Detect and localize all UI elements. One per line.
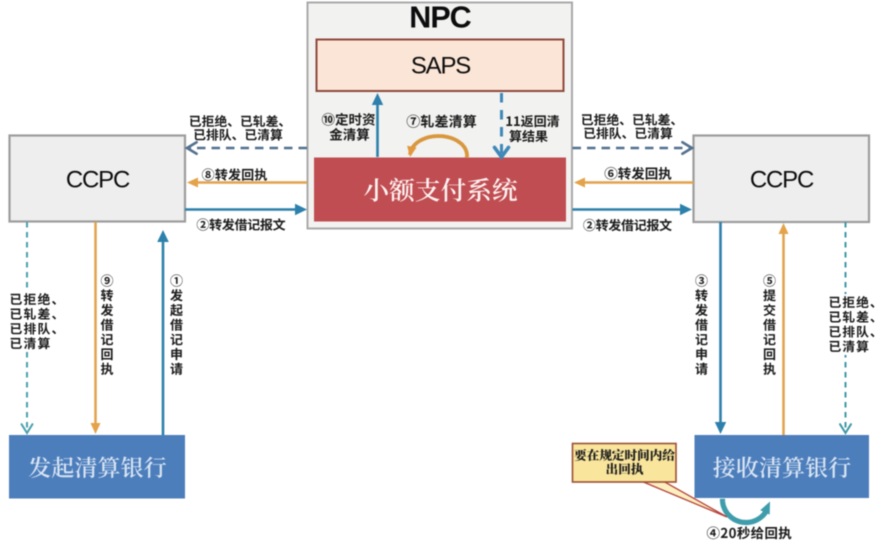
svg-text:CCPC: CCPC — [750, 167, 814, 194]
svg-text:NPC: NPC — [409, 1, 471, 35]
svg-text:SAPS: SAPS — [411, 53, 470, 80]
svg-text:CCPC: CCPC — [66, 167, 130, 194]
